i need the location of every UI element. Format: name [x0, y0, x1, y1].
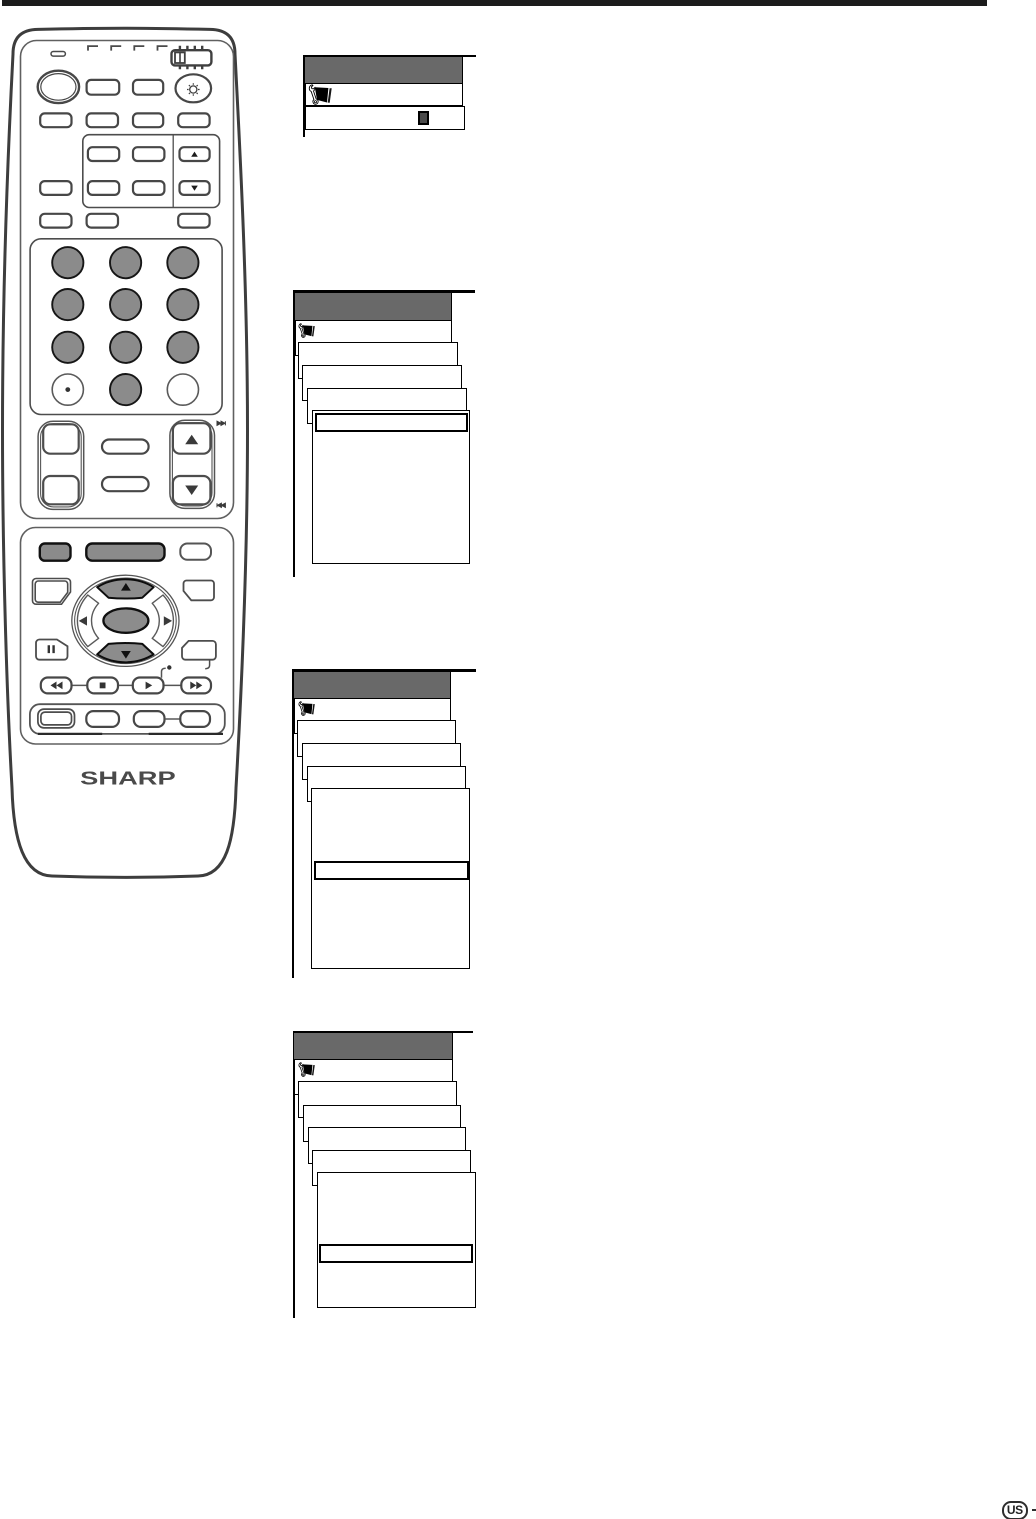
svg-text:SHARP: SHARP [80, 769, 176, 789]
